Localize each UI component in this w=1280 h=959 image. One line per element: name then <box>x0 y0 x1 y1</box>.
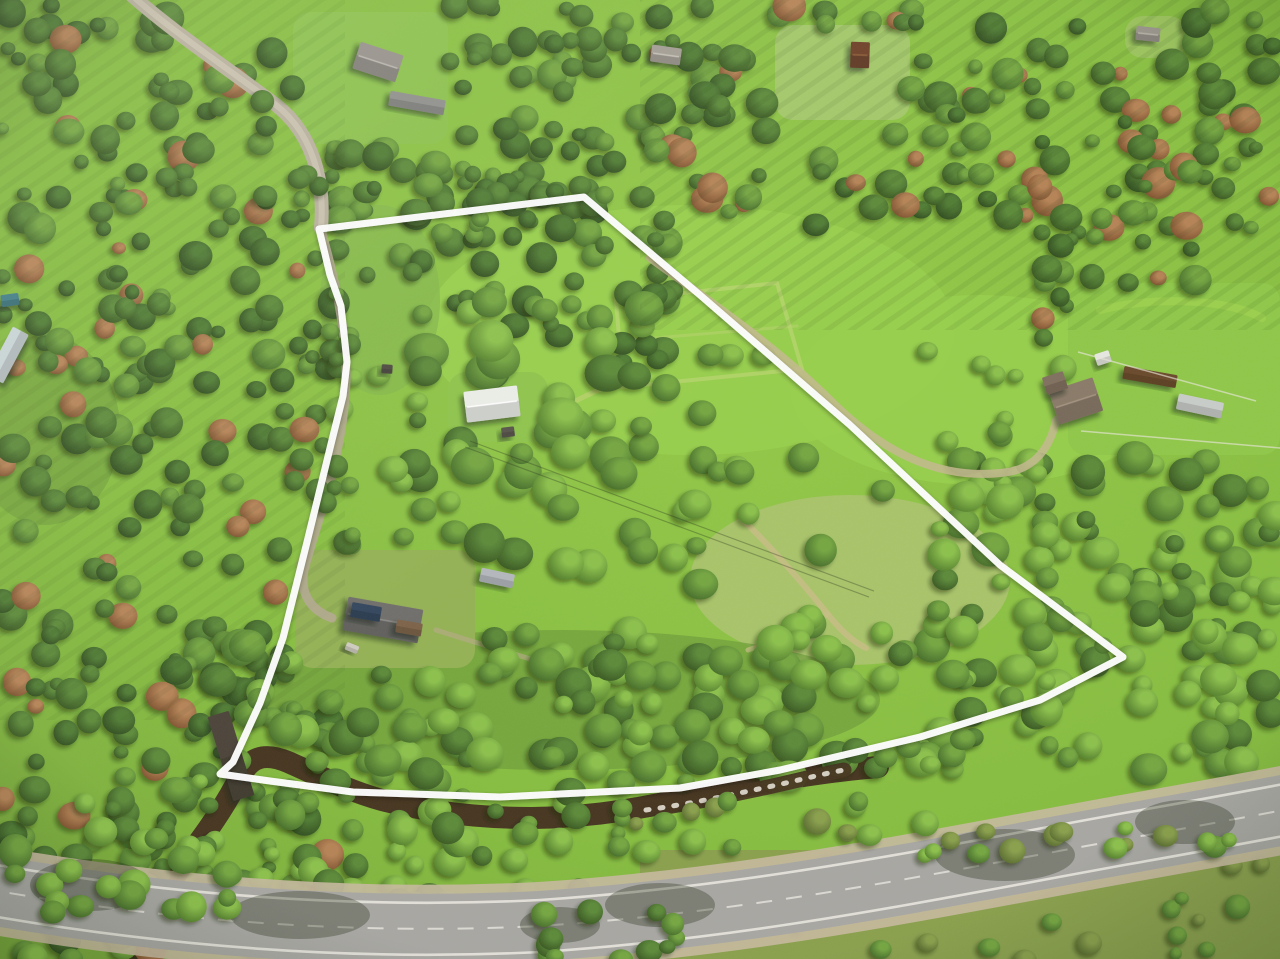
vignette <box>0 0 1280 959</box>
aerial-photo-canvas <box>0 0 1280 959</box>
aerial-photo <box>0 0 1280 959</box>
